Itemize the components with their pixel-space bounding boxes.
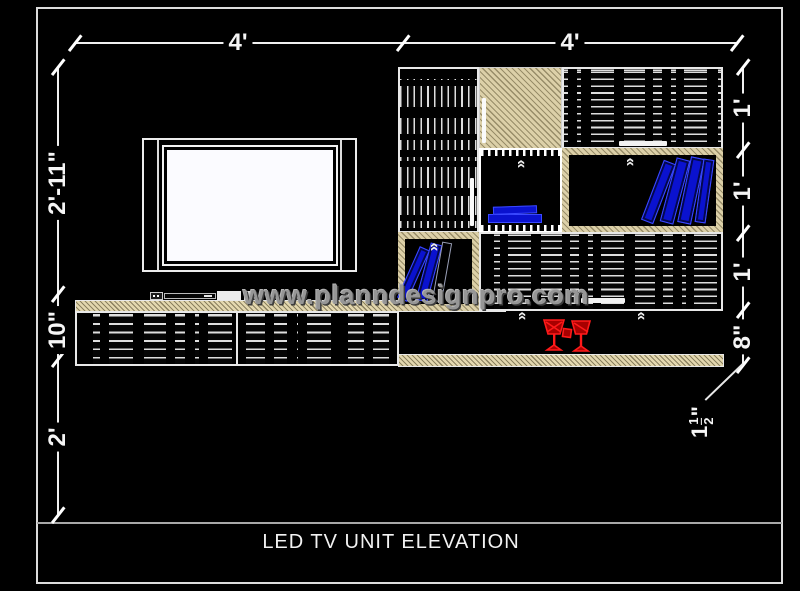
dimension-label-shelf2: 1' [731, 176, 755, 205]
dvd-display [204, 295, 212, 297]
dimension-label-shelf1: 1' [731, 93, 755, 122]
drawing-title: LED TV UNIT ELEVATION [36, 531, 746, 554]
fraction-whole: 1 [687, 426, 712, 438]
dimension-label-shelf3: 1' [731, 257, 755, 286]
chevron-up-icon: « [514, 312, 530, 321]
chevron-up-icon: « [513, 160, 529, 169]
title-separator-line [37, 522, 782, 524]
door-handle [619, 141, 667, 146]
dimension-label-top-left: 4' [223, 31, 252, 55]
wood-cabinet-door [479, 67, 562, 149]
fraction-numerator: 1 [687, 417, 702, 424]
shelf-edge-detail [481, 225, 560, 231]
inch-mark: " [687, 406, 712, 416]
dvd-button [157, 295, 159, 297]
dimension-label-wall-height: 2'-11" [46, 146, 70, 220]
dvd-button-panel [150, 292, 163, 300]
dimension-label-top-right: 4' [555, 31, 584, 55]
dvd-button [153, 295, 155, 297]
chevron-up-icon: « [622, 158, 638, 167]
tv-screen [167, 150, 333, 261]
dimension-label-gap: 8" [731, 320, 755, 355]
door-handle [470, 178, 474, 226]
dimension-label-cabinet-height: 10" [46, 306, 70, 354]
cad-drawing-canvas: LED TV UNIT ELEVATION 4' 4' 2'-11" 10" 2… [0, 0, 800, 591]
tv-speaker-divider-left [157, 140, 159, 270]
open-shelf-wide: « [562, 148, 723, 233]
dim-line-top [75, 42, 737, 44]
tall-cabinet-door [398, 67, 479, 233]
tv-screen-frame [162, 145, 338, 266]
tv-cabinet-drawers [75, 311, 399, 366]
wine-glasses-icon [541, 317, 595, 357]
dimension-label-shelf-thickness: 112" [687, 401, 715, 443]
door-handle [482, 98, 486, 143]
books-flat-icon [493, 205, 537, 215]
cabinet-door-divider [236, 313, 238, 364]
tv-speaker-divider-right [340, 140, 342, 270]
dvd-body [217, 291, 241, 300]
books-flat-icon [488, 214, 542, 223]
upper-cabinet-door [562, 67, 723, 149]
shelf-edge-detail [481, 150, 560, 156]
dvd-tray [164, 293, 216, 299]
watermark: www.planndesignpro.com [243, 280, 589, 311]
fraction-stack: 12 [687, 417, 715, 424]
fraction-denominator: 2 [702, 417, 716, 424]
chevron-up-icon: « [426, 243, 442, 252]
open-shelf-small: « [479, 148, 562, 233]
dimension-label-floor-gap: 2' [46, 422, 70, 451]
chevron-up-icon: « [633, 312, 649, 321]
